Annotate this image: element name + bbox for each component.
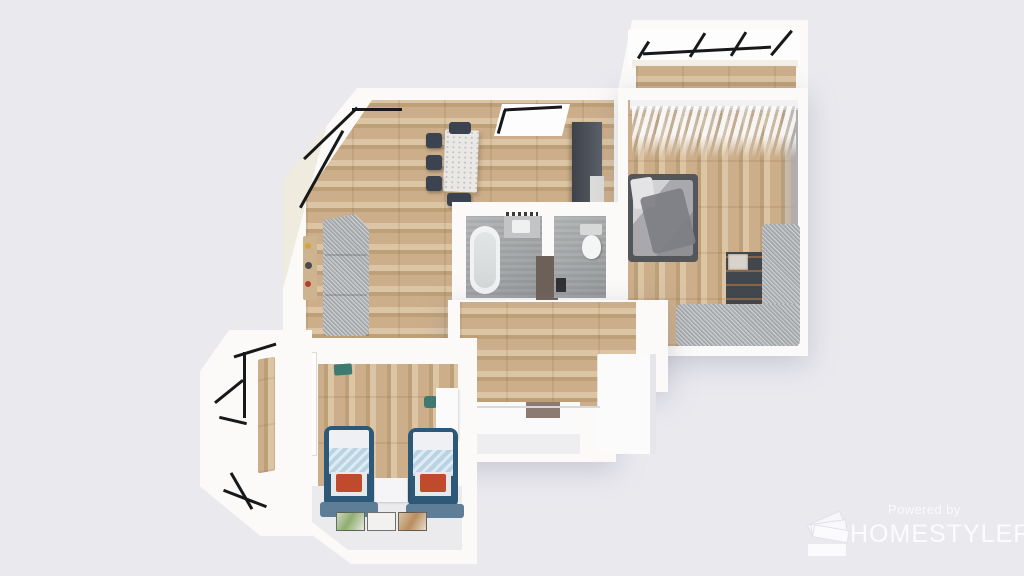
dining-chair [426, 133, 442, 148]
floorplan-render: Powered by HOMESTYLER [0, 0, 1024, 576]
sofa-cushion-seam [325, 294, 367, 296]
shelf-decor-item [305, 243, 311, 249]
shelf-decor-item [305, 262, 312, 269]
dresser-shelf-items [728, 254, 748, 270]
vanity-sink [512, 220, 530, 233]
kids-bed-pillow [420, 474, 446, 492]
dining-table [443, 129, 479, 192]
dining-chair [449, 122, 471, 134]
kids-bed-blanket [329, 448, 369, 474]
hallway-closet-side-face [650, 354, 656, 454]
homestyler-fan-icon [804, 518, 848, 560]
balcony-bottom-left-walls [200, 330, 312, 536]
hallway-closet [598, 354, 656, 454]
fan-base [808, 544, 846, 556]
kids-floor-mat [336, 512, 365, 531]
toilet-bowl [582, 235, 601, 259]
bay-window-frame [352, 108, 402, 111]
living-sofa [323, 214, 369, 336]
hallway-doormat [526, 402, 560, 418]
kids-floor-mat [367, 512, 396, 531]
kids-floor-mat [398, 512, 427, 531]
kids-doormat [334, 363, 353, 375]
dining-chair [426, 176, 442, 191]
kids-drawer-unit [374, 478, 408, 502]
balcony-bottom-left-floor [258, 357, 275, 474]
hanging-clothes [632, 106, 796, 158]
vanity-shelf-items [506, 212, 538, 216]
dining-chair [426, 155, 442, 170]
hallway-step-edge [460, 406, 600, 408]
kids-bed-pillow [336, 474, 362, 492]
toilet-tank [580, 224, 602, 235]
bedroom-l-sofa-bottom [676, 304, 800, 346]
shelf-decor-item [305, 281, 311, 287]
sofa-cushion-seam [325, 254, 367, 256]
balcony-window-frame [243, 352, 246, 418]
bathtub-basin [474, 232, 496, 288]
toilet-room-bin [556, 278, 566, 292]
hallway-bench-front-face [462, 434, 580, 454]
watermark: Powered by HOMESTYLER [800, 498, 1000, 560]
homestyler-brand-label: HOMESTYLER [850, 520, 1024, 549]
powered-by-label: Powered by [888, 502, 961, 517]
